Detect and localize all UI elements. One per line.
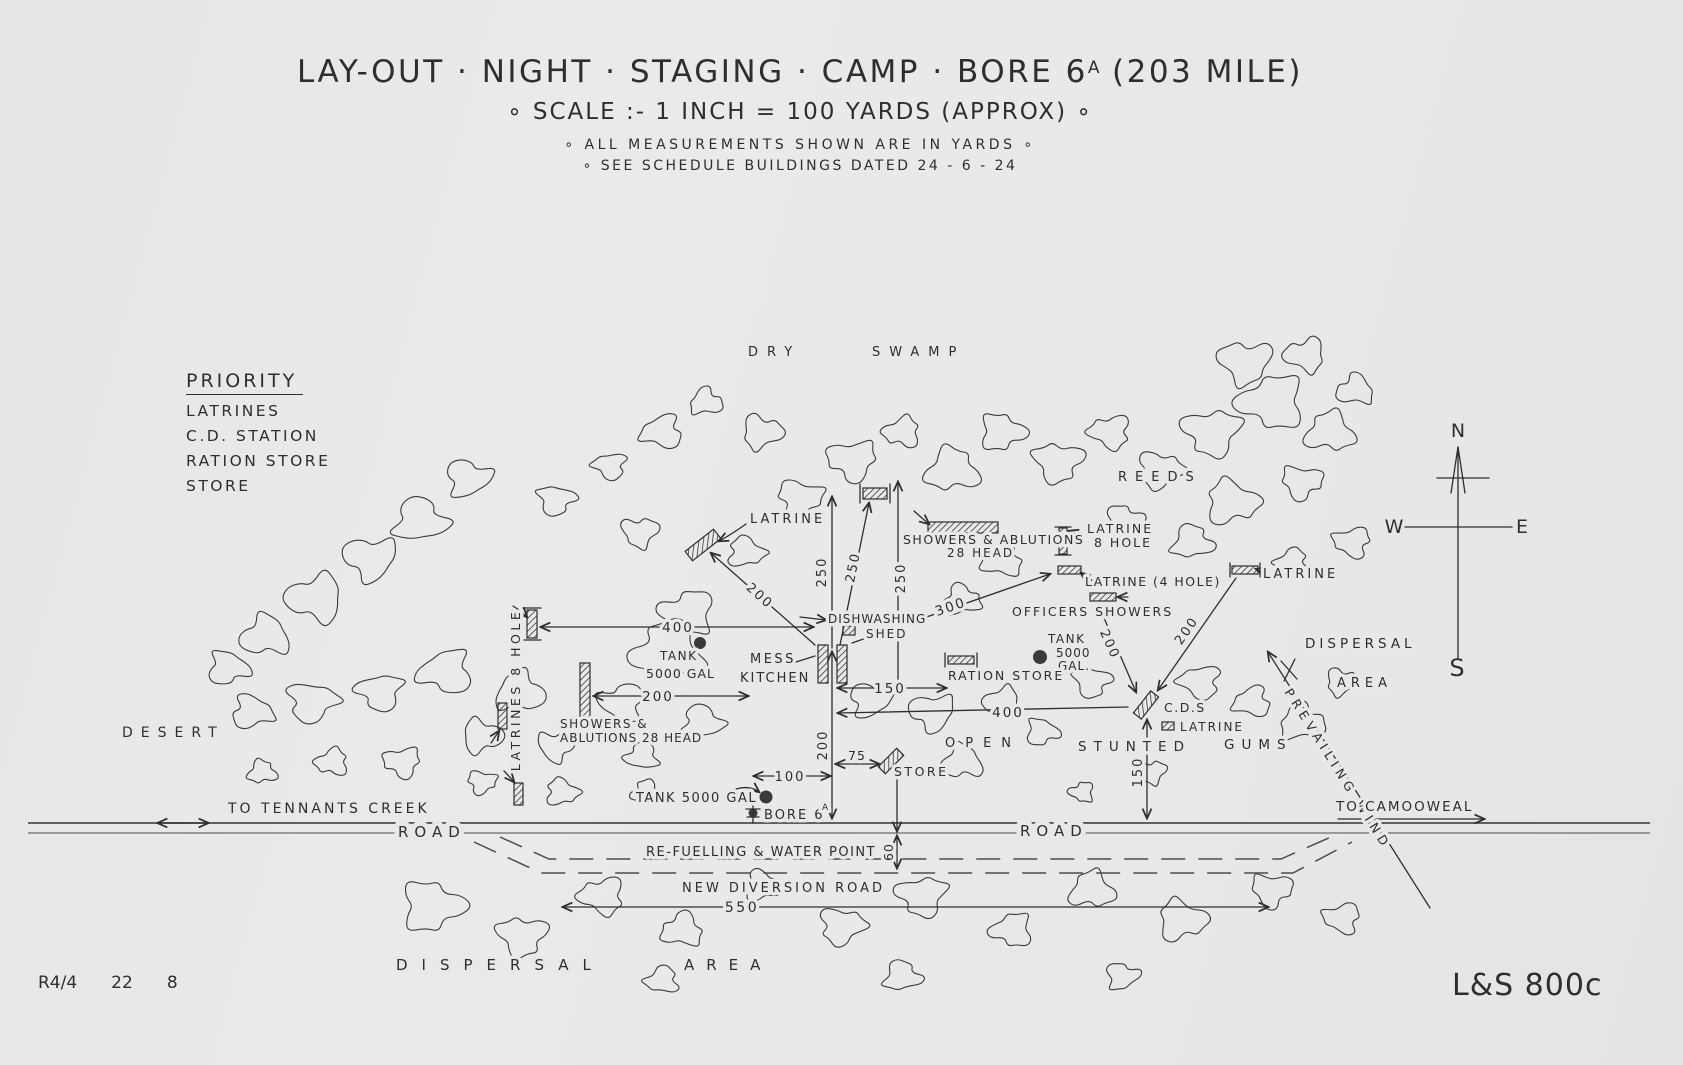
new-diversion-road-label: NEW DIVERSION ROAD: [682, 881, 885, 896]
scrub-outline: [575, 877, 622, 917]
main-road: [28, 819, 1650, 833]
latrines-8hole-west-top-building: [523, 608, 541, 640]
officers-showers-building: [1090, 593, 1116, 601]
latrine-cds-label: LATRINE: [1180, 720, 1244, 734]
compass-s: S: [1449, 654, 1464, 682]
ref-number: R4/4: [38, 973, 77, 993]
dim-200-west: 200: [642, 689, 674, 705]
scrub-outline: [1282, 466, 1324, 502]
latrine-east-building: [1230, 563, 1260, 577]
refuelling-label: RE-FUELLING & WATER POINT: [646, 845, 876, 860]
bore-label: BORE 6: [764, 808, 825, 823]
scrub-outline: [638, 414, 681, 449]
compass-w: W: [1385, 516, 1404, 538]
scrub-outline: [642, 965, 680, 992]
officers-showers-label: OFFICERS SHOWERS: [1012, 604, 1173, 619]
tank-east-label: TANK: [1047, 632, 1085, 646]
dim-200-northwest: 200: [743, 581, 776, 613]
gums-label: GUMS: [1224, 737, 1293, 753]
scrub-outline: [882, 960, 925, 990]
dishwashing-label: DISHWASHING: [828, 612, 926, 626]
cds-building: [1133, 691, 1158, 719]
tank-bore-label: TANK 5000 GAL: [635, 791, 757, 806]
road-right-label: ROAD: [1020, 822, 1088, 840]
latrines-8hole-west-label: LATRINES 8 HOLE: [508, 609, 523, 772]
latrine-east-label: LATRINE: [1263, 567, 1338, 582]
dishwashing-shed-label: SHED: [866, 627, 907, 641]
latrine-8hole-label: LATRINE: [1087, 521, 1153, 536]
showers-ablutions-west-building: [580, 663, 590, 717]
bore-symbol: [746, 803, 760, 823]
scrub-outline: [1179, 411, 1244, 459]
dim-200-officers: 200: [1096, 627, 1122, 661]
scrub-outline: [286, 684, 343, 723]
scrub-outline: [1169, 524, 1217, 557]
dispersal-bottom-area-label: AREA: [684, 956, 772, 974]
bore-superscript: A: [822, 803, 829, 813]
scrub-outline: [826, 440, 876, 483]
scrub-outline: [233, 694, 276, 729]
scrub-outline: [1209, 476, 1263, 525]
scrub-outline: [352, 676, 405, 712]
scrub-outline: [1230, 685, 1270, 717]
latrine-4hole-building: [1058, 566, 1081, 574]
store-label: STORE: [894, 764, 949, 779]
dispersal-right-label: DISPERSAL: [1305, 636, 1416, 652]
road-left-label: ROAD: [398, 823, 466, 841]
dim-100: 100: [775, 770, 806, 785]
scrub-outline: [342, 538, 395, 585]
to-camooweal-label: TO CAMOOWEAL: [1335, 799, 1473, 815]
sheet-number: L&S 800c: [1452, 968, 1602, 1003]
showers-north-label: SHOWERS & ABLUTIONS: [903, 532, 1084, 547]
camp-layout-map: PREVAILING WIND N W E S: [0, 0, 1683, 1065]
latrines-west-bottom-pointer: [491, 731, 499, 743]
scrub-outline: [1174, 667, 1221, 701]
compass-n: N: [1451, 420, 1465, 442]
tank-bore-symbol: [760, 791, 773, 804]
scrub-outline: [1030, 444, 1086, 486]
dim-200-vertical: 200: [816, 730, 831, 761]
latrine-nw-pointer: [719, 524, 746, 541]
scrub-outline: [1252, 874, 1293, 910]
mess-kitchen-pointer: [796, 656, 815, 662]
prevailing-wind-label: PREVAILING WIND: [1281, 686, 1394, 853]
scrub-outline: [1321, 903, 1360, 935]
latrine-cds-building: [1162, 722, 1174, 730]
to-tennants-creek-label: TO TENNANTS CREEK: [227, 801, 430, 817]
scrub-outline: [1071, 669, 1114, 698]
drawing-sheet: LAY-OUT · NIGHT · STAGING · CAMP · BORE …: [0, 0, 1683, 1065]
scrub-outline: [448, 460, 495, 497]
scrub-outline: [987, 913, 1031, 945]
scrub-outline: [283, 570, 338, 625]
dishwashing-pointer: [800, 617, 826, 620]
scrub-outline: [983, 414, 1030, 450]
dim-400-west: 400: [662, 620, 694, 636]
ration-store-label: RATION STORE: [948, 668, 1064, 683]
scrub-outline: [312, 746, 346, 775]
showers-north-pointer: [914, 511, 929, 524]
scrub-outline: [589, 454, 627, 480]
dispersal-right-area-label: AREA: [1337, 676, 1392, 691]
latrine-nw-label: LATRINE: [750, 512, 825, 527]
scrub-outline: [494, 918, 549, 959]
latrine-roadside-building: [514, 783, 523, 805]
scrub-outline: [209, 650, 252, 683]
scrub-outline: [1027, 718, 1061, 745]
cds-label: C.D.S: [1164, 700, 1206, 715]
dim-250-c: 250: [894, 563, 909, 594]
scrub-outline: [414, 649, 470, 692]
scrub-outline: [406, 882, 470, 930]
scrub-outline: [382, 747, 420, 780]
compass-e: E: [1516, 516, 1528, 538]
latrine-8hole-label2: 8 HOLE: [1094, 535, 1152, 550]
dishwashing-shed-building: [843, 626, 855, 635]
kitchen-label: KITCHEN: [740, 671, 810, 686]
scrub-outline: [1282, 336, 1323, 375]
showers-west-label2: ABLUTIONS 28 HEAD: [560, 731, 702, 745]
dim-150-horizontal: 150: [874, 681, 906, 697]
reeds-label: REEDS: [1118, 470, 1202, 485]
scrub-outline: [535, 487, 578, 516]
dispersal-bottom-label: DISPERSAL: [396, 956, 605, 974]
scrub-outline: [923, 444, 982, 490]
scrub-outline: [880, 414, 918, 448]
scrub-outline: [728, 535, 769, 566]
scrub-outline: [595, 684, 642, 721]
stunted-label: STUNTED: [1078, 739, 1191, 755]
dim-60: 60: [881, 843, 896, 861]
open-label: OPEN: [945, 736, 1021, 751]
scrub-outline: [1232, 376, 1300, 428]
showers-west-label: SHOWERS &: [560, 717, 648, 731]
dim-300: 300: [933, 594, 968, 619]
dim-200-east-latrine-line: [1158, 578, 1236, 690]
scrub-outline: [1085, 415, 1129, 451]
reference-marks: R4/4 22 8: [38, 973, 178, 993]
scrub-outline: [820, 909, 870, 948]
scrub-outline: [691, 386, 723, 415]
scrub-outline: [239, 611, 289, 654]
tank-west-label: TANK: [659, 649, 697, 663]
swamp-label: SWAMP: [872, 345, 965, 360]
scrub-outline: [893, 878, 949, 919]
scrub-outline: [908, 694, 952, 734]
scrub-outline: [1216, 343, 1273, 389]
latrine-4hole-label: LATRINE (4 HOLE): [1085, 574, 1221, 589]
scrub-outline: [660, 910, 702, 946]
dim-400-east: 400: [992, 705, 1024, 721]
scrub-outline: [1336, 372, 1372, 405]
ref-number: 22: [111, 973, 133, 993]
latrines-8hole-west-bottom-building: [498, 703, 507, 729]
scrub-outline: [1331, 527, 1370, 559]
dim-75: 75: [848, 748, 866, 763]
dim-550: 550: [725, 900, 759, 916]
ration-store-building: [945, 653, 977, 667]
scrub-outline: [390, 497, 453, 539]
dim-250-a: 250: [815, 557, 830, 588]
scrub-outline: [1107, 964, 1142, 990]
scrub-outline: [1303, 408, 1357, 450]
scrub-outline: [621, 519, 660, 551]
tank-west-symbol: [694, 637, 706, 649]
latrine-nw-building: [685, 529, 721, 561]
desert-label: DESERT: [122, 725, 225, 741]
ref-number: 8: [167, 973, 178, 993]
tank-west-gal-label: 5000 GAL: [646, 666, 715, 681]
new-diversion-road: [474, 837, 1352, 873]
latrine-top-building: [860, 484, 890, 503]
dry-label: DRY: [748, 345, 801, 360]
dim-250-b: 250: [843, 551, 864, 584]
scrub-outline: [246, 758, 278, 783]
scrub-outline: [1161, 896, 1211, 942]
tank-east-5000-label: 5000: [1056, 646, 1091, 660]
scrub-outline: [1067, 782, 1093, 802]
scrub-outline: [468, 771, 499, 796]
showers-north-head-label: 28 HEAD: [947, 546, 1014, 560]
dim-150-vertical: 150: [1131, 757, 1146, 788]
scrub-outline: [745, 413, 786, 452]
scrub-outline: [622, 742, 661, 768]
tank-east-symbol: [1033, 650, 1047, 664]
mess-label: MESS: [750, 652, 796, 667]
dim-400-east-line: [838, 707, 1128, 713]
latrine-roadside-pointer: [504, 771, 514, 782]
dim-200-east: 200: [1172, 614, 1202, 648]
scrub-outline: [547, 777, 583, 805]
